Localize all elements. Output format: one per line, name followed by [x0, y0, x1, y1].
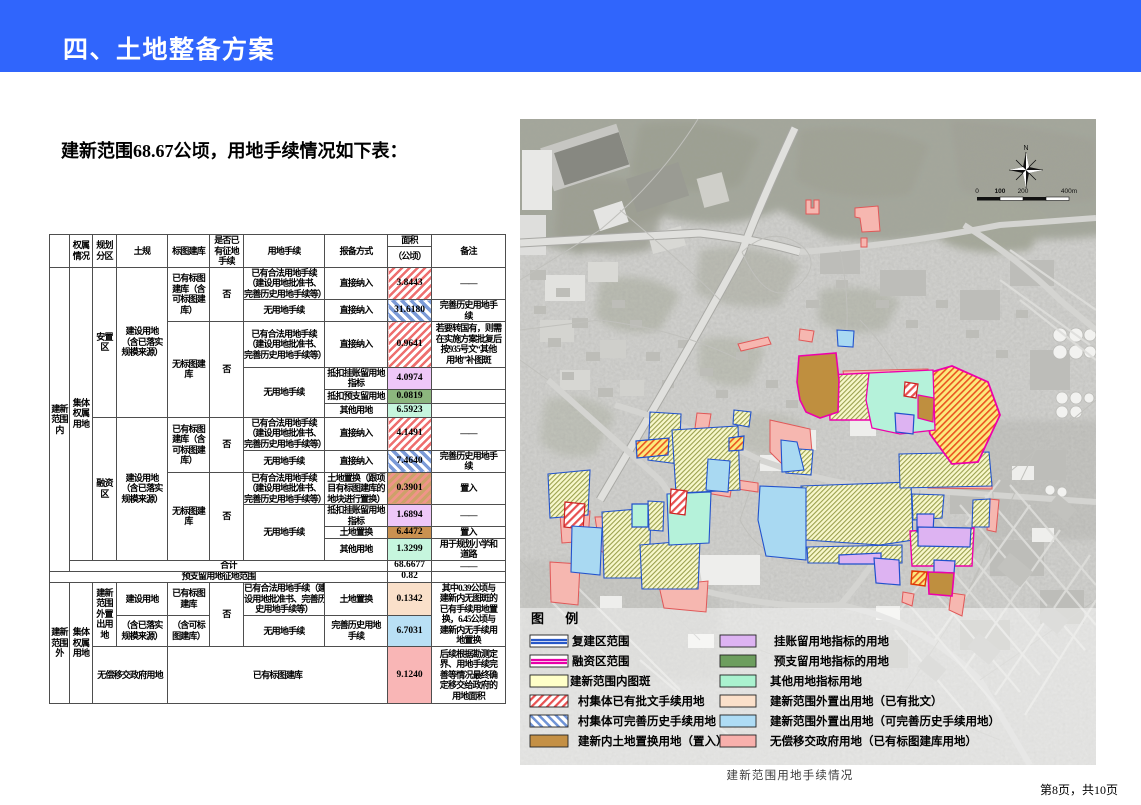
svg-text:村集体已有批文手续用地: 村集体已有批文手续用地 [578, 694, 705, 708]
svg-text:融资区范围: 融资区范围 [572, 654, 630, 668]
svg-text:无偿移交政府用地（已有标图建库用地）: 无偿移交政府用地（已有标图建库用地） [769, 734, 977, 748]
svg-text:村集体可完善历史手续用地: 村集体可完善历史手续用地 [578, 714, 716, 728]
svg-text:建新内土地置换用地（置入）: 建新内土地置换用地（置入） [578, 734, 728, 748]
svg-text:200: 200 [1018, 188, 1029, 195]
svg-text:挂账留用地指标的用地: 挂账留用地指标的用地 [774, 634, 889, 648]
svg-text:建新范围外置出用地（可完善历史手续用地）: 建新范围外置出用地（可完善历史手续用地） [770, 714, 1000, 728]
svg-text:N: N [1023, 145, 1028, 152]
svg-text:图 例: 图 例 [531, 611, 587, 626]
svg-text:建新范围外置出用地（已有批文）: 建新范围外置出用地（已有批文） [770, 694, 943, 708]
svg-text:预支留用地指标的用地: 预支留用地指标的用地 [774, 654, 889, 668]
svg-text:100: 100 [995, 188, 1006, 195]
svg-text:建新范围内图斑: 建新范围内图斑 [570, 674, 651, 688]
svg-text:复建区范围: 复建区范围 [571, 634, 630, 648]
svg-text:0: 0 [975, 188, 979, 195]
svg-text:400m: 400m [1061, 188, 1077, 195]
svg-text:其他用地指标用地: 其他用地指标用地 [770, 674, 862, 688]
